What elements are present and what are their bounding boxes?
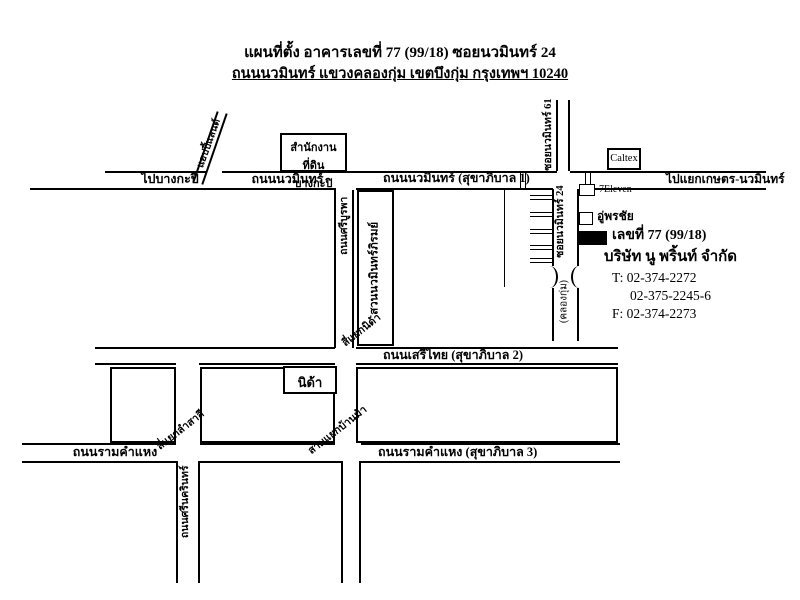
si-burapha-road-line bbox=[334, 190, 336, 348]
srinakarin-road-line bbox=[176, 461, 178, 583]
si-burapha-road-label: ถนนศรีบูรพา bbox=[339, 188, 351, 264]
alley-tick bbox=[530, 229, 553, 230]
si-burapha-road-line bbox=[352, 190, 354, 348]
soi-24-right-line bbox=[577, 189, 579, 266]
alley-tick bbox=[530, 216, 553, 217]
soi-61-line bbox=[568, 100, 570, 171]
pornchai-garage-label: อู่พรชัย bbox=[597, 210, 634, 223]
seven-eleven-box bbox=[579, 184, 595, 196]
ramkhamhaeng-lower-line bbox=[199, 461, 341, 463]
soi-24-left-line bbox=[552, 189, 554, 266]
soi-61-line bbox=[556, 100, 558, 171]
map-title-line1: แผนที่ตั้ง อาคารเลขที่ 77 (99/18) ซอยนวม… bbox=[0, 40, 800, 64]
nida-label: นิด้า bbox=[285, 372, 335, 393]
to-kaset-nawamin-label: ไปแยกเกษตร-นวมินทร์ bbox=[666, 173, 774, 186]
serithai-road-label: ถนนเสรีไทย (สุขาภิบาล 2) bbox=[383, 349, 513, 363]
target-building-marker bbox=[579, 231, 607, 245]
city-block bbox=[356, 367, 618, 443]
alley-tick bbox=[530, 245, 553, 246]
fax-number: F: 02-374-2273 bbox=[612, 307, 696, 322]
soi-nawamin-61-label: ซอยนวมินทร์ 61 bbox=[543, 101, 555, 171]
serithai-road-upper-line bbox=[95, 347, 335, 349]
soi-nawamin-24-label: ซอยนวมินทร์ 24 bbox=[555, 186, 567, 258]
alley-tick bbox=[530, 195, 553, 196]
phone-number-1: T: 02-374-2272 bbox=[612, 271, 696, 286]
alley-tick bbox=[530, 249, 553, 250]
caltex-station-box: Caltex bbox=[607, 148, 641, 170]
caltex-label: Caltex bbox=[609, 153, 639, 164]
pornchai-garage-box bbox=[579, 212, 593, 225]
alley-tick bbox=[530, 199, 553, 200]
company-name-label: บริษัท นู พริ้นท์ จำกัด bbox=[598, 249, 743, 266]
alley-tick bbox=[530, 262, 553, 263]
ban-ma-south-road-line bbox=[341, 461, 343, 583]
crossing-tick bbox=[520, 172, 521, 188]
bridge-symbol bbox=[571, 266, 579, 288]
location-map: แผนที่ตั้ง อาคารเลขที่ 77 (99/18) ซอยนวม… bbox=[0, 0, 800, 600]
khlong-kum-canal-label: (คลองกุ่ม) bbox=[559, 270, 570, 334]
phone-number-2: 02-375-2245-6 bbox=[630, 289, 711, 304]
building-address-label: เลขที่ 77 (99/18) bbox=[612, 228, 706, 243]
bridge-symbol bbox=[550, 266, 558, 288]
alley-tick bbox=[530, 258, 553, 259]
crossing-tick bbox=[525, 172, 526, 188]
soi-24-right-line bbox=[577, 288, 579, 341]
land-office-label-line1: สำนักงานที่ดิน bbox=[282, 138, 345, 174]
ban-ma-south-road-line bbox=[359, 461, 361, 583]
seven-eleven-label: 7Eleven bbox=[599, 184, 632, 195]
ramkhamhaeng-lower-line bbox=[22, 461, 176, 463]
nida-box: นิด้า bbox=[283, 366, 337, 394]
land-office-box: สำนักงานที่ดิน บางกะปิ bbox=[280, 133, 347, 172]
city-block bbox=[110, 367, 176, 443]
nawamin-sukhapiban1-label: ถนนนวมินทร์ (สุขาภิบาล 1) bbox=[383, 172, 513, 186]
nawamin-phirom-park-label: สวนนวมินทร์ภิรมย์ bbox=[369, 216, 382, 320]
ramkhamhaeng-lower-line bbox=[361, 461, 620, 463]
soi-24-left-line bbox=[552, 288, 554, 341]
serithai-road-lower-line bbox=[356, 363, 618, 365]
alley-tick bbox=[530, 212, 553, 213]
srinakarin-road-line bbox=[198, 461, 200, 583]
map-title-line2: ถนนนวมินทร์ แขวงคลองกุ่ม เขตบึงกุ่ม กรุง… bbox=[0, 62, 800, 85]
boundary-line bbox=[504, 189, 505, 287]
alley-tick bbox=[530, 233, 553, 234]
serithai-road-lower-line bbox=[95, 363, 176, 365]
srinakarin-road-label: ถนนศรีนครินทร์ bbox=[180, 460, 192, 544]
ramkhamhaeng-sukhapiban3-label: ถนนรามคำแหง (สุขาภิบาล 3) bbox=[378, 446, 528, 460]
serithai-road-lower-line bbox=[199, 363, 335, 365]
